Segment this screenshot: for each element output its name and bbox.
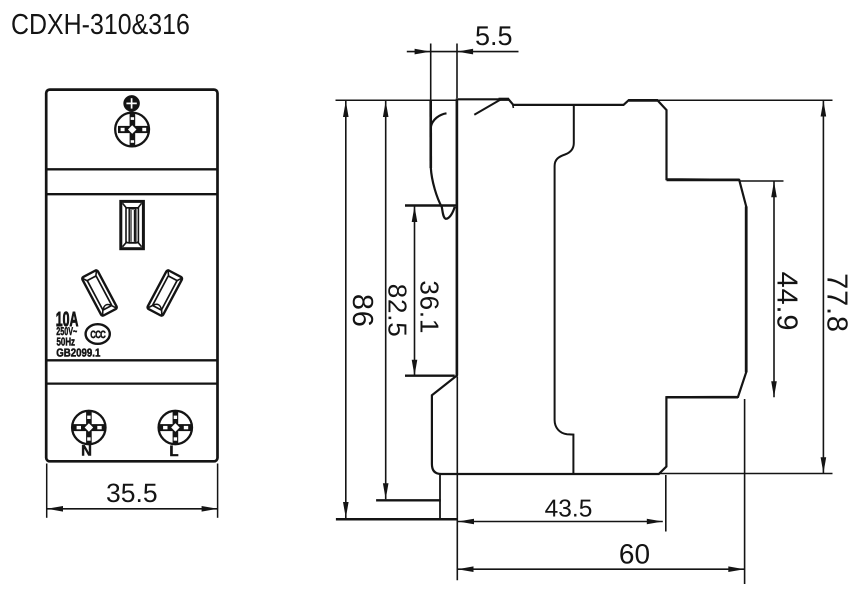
svg-text:60: 60 bbox=[619, 539, 650, 570]
svg-text:CCC: CCC bbox=[90, 329, 106, 341]
svg-text:43.5: 43.5 bbox=[545, 496, 593, 523]
svg-text:35.5: 35.5 bbox=[106, 478, 158, 508]
svg-text:CDXH-310&316: CDXH-310&316 bbox=[11, 9, 190, 41]
svg-text:5.5: 5.5 bbox=[475, 21, 513, 51]
svg-text:77.8: 77.8 bbox=[820, 273, 852, 333]
svg-text:L: L bbox=[169, 443, 178, 460]
svg-text:82.5: 82.5 bbox=[383, 284, 413, 338]
svg-text:36.1: 36.1 bbox=[415, 280, 445, 334]
svg-text:44.9: 44.9 bbox=[770, 272, 802, 332]
svg-text:86: 86 bbox=[346, 294, 378, 328]
svg-text:N: N bbox=[81, 443, 92, 460]
svg-text:GB2099.1: GB2099.1 bbox=[56, 348, 101, 360]
